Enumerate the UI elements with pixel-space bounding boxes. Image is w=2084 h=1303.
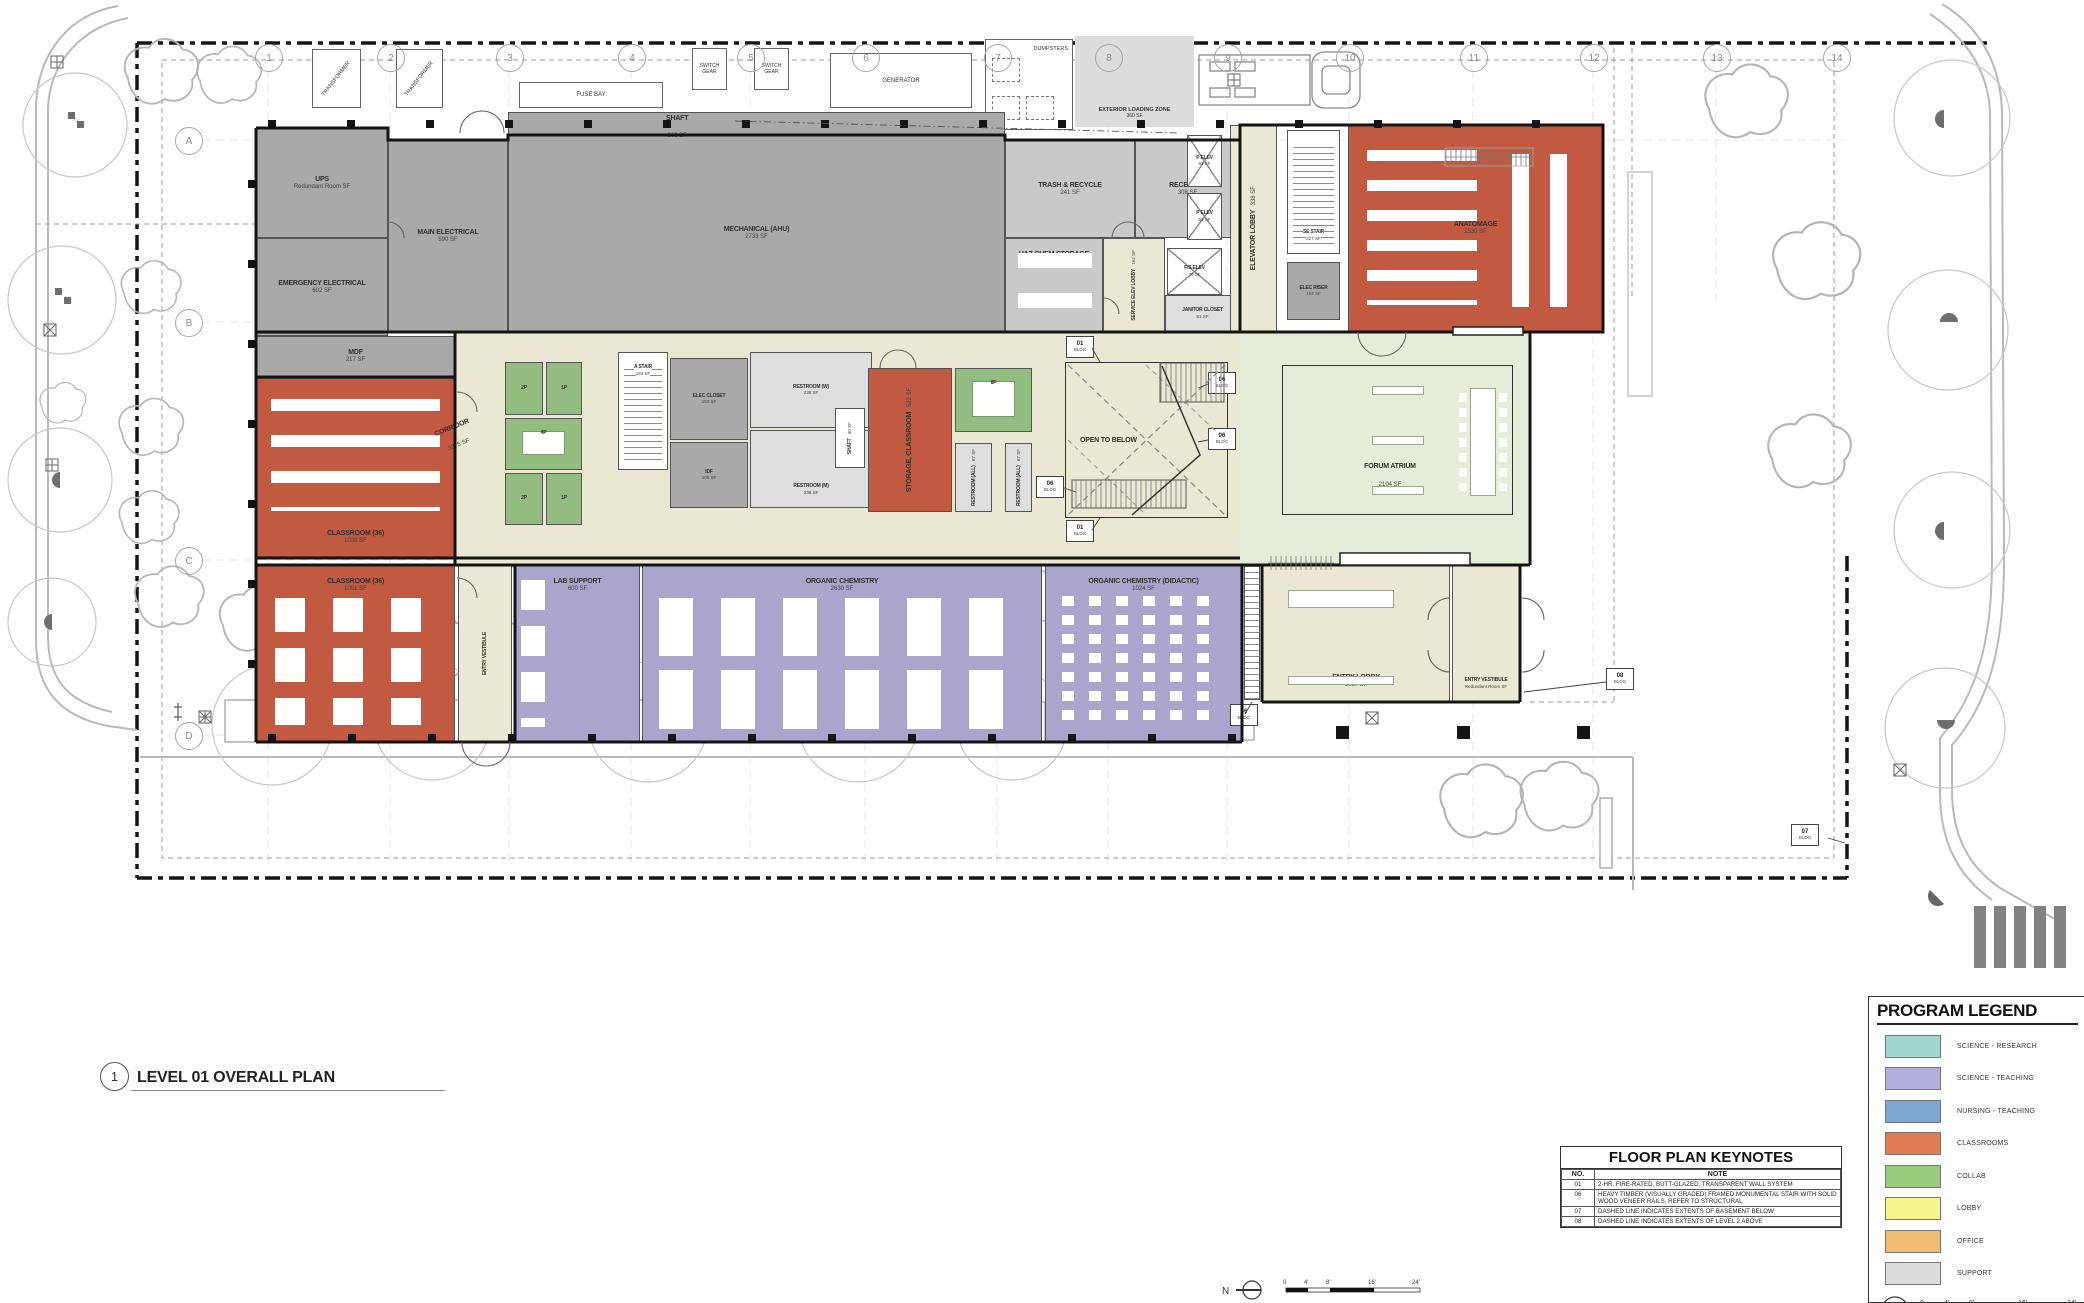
keynotes-title: FLOOR PLAN KEYNOTES [1561, 1147, 1841, 1169]
room-emergency-electrical: EMERGENCY ELECTRICAL602 SF [256, 238, 388, 336]
room-shaft-strip [508, 112, 1005, 135]
room-collab-2p-b: 2P [505, 473, 543, 525]
keynote-tag-01: 01BLDG [1066, 336, 1094, 358]
room-collab-1p-a: 1P [546, 362, 582, 415]
room-collab-2p-a: 2P [505, 362, 543, 415]
atrium-bench [1372, 436, 1424, 445]
keynote-row: 07DASHED LINE INDICATES EXTENTS OF BASEM… [1562, 1207, 1841, 1217]
legend-swatch-science-teaching [1885, 1067, 1941, 1090]
shaft-label: SHAFT306 SF [666, 108, 688, 142]
lobby-bench [1288, 676, 1394, 685]
grid-bubble-6: 6 [852, 44, 880, 72]
svg-text:24': 24' [1412, 1280, 1420, 1286]
grid-bubble-5: 5 [737, 44, 765, 72]
room-trash-recycle: TRASH & RECYCLE241 SF [1005, 140, 1135, 238]
room-entry-vestibule-left: ENTRY VESTIBULE [458, 565, 512, 742]
legend-row: COLLAB [1877, 1165, 2078, 1188]
grid-bubble-9: 9 [1214, 44, 1242, 72]
legend-row: LOBBY [1877, 1197, 2078, 1220]
drawing-number-bubble: 1 [100, 1062, 129, 1091]
north-arrow-icon: N [1222, 1281, 1261, 1299]
grid-bubble-14: 14 [1823, 44, 1851, 72]
atrium-bench [1372, 386, 1424, 395]
grid-bubble-B: B [175, 309, 203, 337]
legend-swatch-nursing-teaching [1885, 1100, 1941, 1123]
legend-row: CLASSROOMS [1877, 1132, 2078, 1155]
legend-swatch-classrooms [1885, 1132, 1941, 1155]
room-classroom-b: CLASSROOM (36)1051 SF [256, 565, 455, 742]
keynote-tag-07: 07BLDG [1791, 824, 1819, 846]
grid-bubble-13: 13 [1703, 44, 1731, 72]
room-ups: UPSRedundant Room SF [256, 128, 388, 238]
grid-bubble-2: 2 [377, 44, 405, 72]
room-shaft-core: SHAFT 60 SF [835, 408, 865, 468]
road-arrow-icon [1928, 890, 1944, 906]
grid-bubble-A: A [175, 127, 203, 155]
svg-text:0: 0 [1283, 1280, 1287, 1286]
program-legend-panel: PROGRAM LEGEND SCIENCE - RESEARCH SCIENC… [1868, 996, 2084, 1303]
room-janitor-closet: JANITOR CLOSET61 SF [1165, 295, 1240, 332]
room-lab-support: LAB SUPPORT600 SF [515, 565, 640, 742]
legend-north-and-scale: 0 4' 8' 16' 24' [1877, 1293, 2083, 1303]
keynote-tag-01: 01BLDG [1066, 520, 1094, 542]
keynotes-table: NO.NOTE 012-HR. FIRE-RATED, BUTT-GLAZED,… [1561, 1169, 1841, 1227]
keynote-tag-06: 06BLDG [1230, 704, 1258, 726]
room-main-electrical: MAIN ELECTRICAL590 SF [388, 140, 508, 332]
transformer-1: TRANSFORMER [312, 49, 361, 108]
legend-row: SCIENCE - RESEARCH [1877, 1035, 2078, 1058]
grid-bubble-3: 3 [496, 44, 524, 72]
room-mdf: MDF217 SF [256, 336, 455, 377]
keynote-tag-08: 08BLDG [1606, 668, 1634, 690]
svg-text:N: N [1222, 1286, 1229, 1297]
keynote-tag-06: 06BLDG [1036, 476, 1064, 498]
room-restroom-all-1: RESTROOM (ALL) 67 SF [955, 443, 992, 512]
grid-bubble-D: D [175, 722, 203, 750]
keynote-tag-06: 06BLDG [1208, 372, 1236, 394]
exit-stair-strip [1244, 565, 1260, 700]
room-se-stair: SE STAIR227 SF [1287, 130, 1340, 254]
grid-bubble-8: 8 [1095, 44, 1123, 72]
water-feature [1628, 172, 1652, 396]
svg-text:16': 16' [1368, 1280, 1376, 1286]
room-organic-chemistry: ORGANIC CHEMISTRY2630 SF [642, 565, 1042, 742]
open-to-below-area: OPEN TO BELOW [1065, 362, 1228, 518]
graphic-scale-bar: 0 4' 8' 16' 24' [1283, 1280, 1420, 1292]
room-entry-vestibule-right: ENTRY VESTIBULERedundant Room SF [1452, 565, 1520, 702]
legend-row: NURSING - TEACHING [1877, 1100, 2078, 1123]
legend-row: SCIENCE - TEACHING [1877, 1067, 2078, 1090]
room-elevator-lobby: ELEVATOR LOBBY 338 SF [1230, 125, 1277, 332]
svg-text:4': 4' [1304, 1280, 1308, 1286]
floor-plan-keynotes-panel: FLOOR PLAN KEYNOTES NO.NOTE 012-HR. FIRE… [1560, 1146, 1842, 1228]
keynote-row: 08DASHED LINE INDICATES EXTENTS OF LEVEL… [1562, 1217, 1841, 1227]
room-collab-4p: 4P [505, 418, 582, 470]
room-p-elev-1: P ELEV63 SF [1187, 135, 1222, 187]
drawing-title: 1 LEVEL 01 OVERALL PLAN [100, 1062, 445, 1091]
forum-atrium-label: FORUM ATRIUM2104 SF [1320, 455, 1460, 490]
drawing-title-text: LEVEL 01 OVERALL PLAN [131, 1069, 445, 1091]
room-service-elev-lobby: SERVICE ELEV LOBBY 152 SF [1103, 238, 1165, 332]
room-a-stair: A STAIR184 SF [618, 352, 668, 470]
room-elec-riser: ELEC RISER104 SF [1287, 262, 1340, 320]
grid-bubble-11: 11 [1460, 44, 1488, 72]
legend-swatch-collab [1885, 1165, 1941, 1188]
grid-bubble-10: 10 [1336, 44, 1364, 72]
room-elec-closet: ELEC CLOSET153 SF [670, 358, 748, 440]
exterior-loading-zone: EXTERIOR LOADING ZONE 360 SF [1075, 36, 1194, 127]
grid-bubble-7: 7 [984, 44, 1012, 72]
grid-bubble-1: 1 [255, 44, 283, 72]
room-organic-chemistry-didactic: ORGANIC CHEMISTRY (DIDACTIC)1024 SF [1045, 565, 1242, 742]
legend-row: OFFICE [1877, 1230, 2078, 1253]
floor-plan-sheet: UPSRedundant Room SF MAIN ELECTRICAL590 … [0, 0, 2084, 1303]
room-p-elev-2: P ELEV63 SF [1187, 193, 1222, 240]
atrium-conference-table [1470, 388, 1496, 496]
grid-bubble-12: 12 [1580, 44, 1608, 72]
room-anatomage: ANATOMAGE1530 SF [1348, 125, 1603, 332]
keynote-row: 06HEAVY TIMBER (VISUALLY GRADED) FRAMED … [1562, 1190, 1841, 1207]
legend-swatch-office [1885, 1230, 1941, 1253]
legend-swatch-science-research [1885, 1035, 1941, 1058]
room-collab-1p-b: 1P [546, 473, 582, 525]
crosswalk-stripes [1974, 906, 2066, 968]
legend-swatch-support [1885, 1262, 1941, 1285]
keynote-tag-06: 06BLDG [1208, 428, 1236, 450]
room-idf: IDF105 SF [670, 442, 748, 508]
room-classroom-a: CLASSROOM (36)1038 SF [256, 378, 455, 558]
room-restroom-all-2: RESTROOM (ALL) 67 SF [1005, 443, 1032, 512]
grid-bubble-4: 4 [618, 44, 646, 72]
room-haz-chem-storage: HAZ CHEM STORAGE554 SF [1005, 238, 1103, 332]
keynote-row: 012-HR. FIRE-RATED, BUTT-GLAZED, TRANSPA… [1562, 1180, 1841, 1190]
legend-row: SUPPORT [1877, 1262, 2078, 1285]
room-storage-classroom: STORAGE, CLASSROOM 522 SF [868, 368, 952, 512]
grid-bubble-C: C [175, 547, 203, 575]
switch-gear-1: SWITCH GEAR [692, 48, 727, 90]
program-legend-title: PROGRAM LEGEND [1877, 1001, 2078, 1025]
room-mechanical: MECHANICAL (AHU)2733 SF [508, 135, 1005, 332]
room-fs-elev: F/S ELEV70 SF [1167, 248, 1222, 295]
colonnade-columns [1336, 726, 1590, 739]
reception-desk [1288, 590, 1394, 608]
generator: GENERATOR [830, 53, 972, 108]
fuse-bay: FUSE BAY [519, 82, 663, 108]
legend-swatch-lobby [1885, 1197, 1941, 1220]
room-collab-8p: 8P [955, 368, 1032, 432]
svg-text:8': 8' [1326, 1280, 1330, 1286]
